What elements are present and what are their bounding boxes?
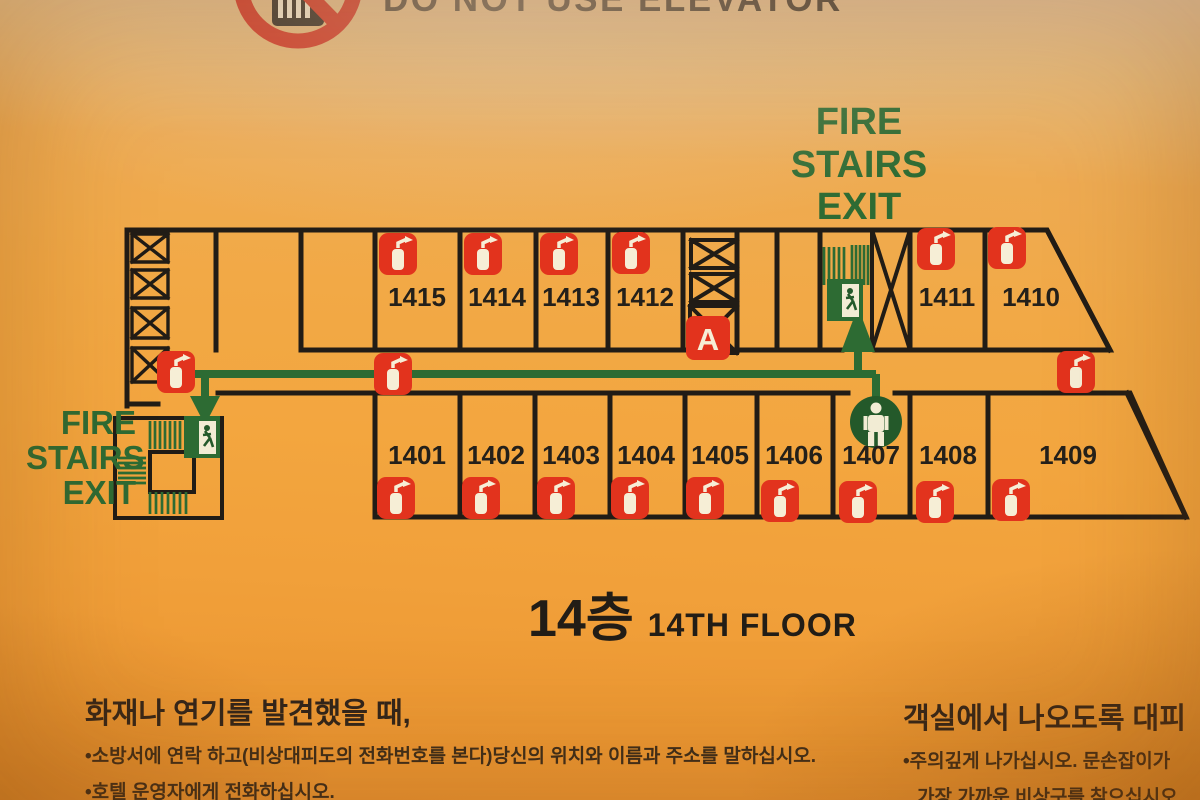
floor-plan: A 1415 1414 1413 1412 1411 1410 1401 140… [0,0,1200,800]
fire-extinguisher-icon [761,480,799,522]
room-1409-label: 1409 [1039,440,1097,470]
stairs-label: STAIRS [778,144,940,187]
room-1415-label: 1415 [388,282,446,312]
zone-a-marker: A [686,316,730,360]
fire-extinguisher-icon [464,233,502,275]
room-1407-label: 1407 [842,440,900,470]
fire-extinguisher-icon [379,233,417,275]
room-1403-label: 1403 [542,440,600,470]
room-1404-label: 1404 [617,440,675,470]
fire-extinguisher-icon [377,477,415,519]
fire-extinguisher-icon [992,479,1030,521]
exit-label: EXIT [26,476,136,511]
fire-extinguisher-icon [917,228,955,270]
instructions-right-heading: 객실에서 나오도록 대피 [903,695,1186,737]
fire-stairs-exit-label-top: FIRE STAIRS EXIT [778,101,940,229]
exit-label: EXIT [778,186,940,229]
room-1402-label: 1402 [467,440,525,470]
fire-extinguisher-icon [540,233,578,275]
stairs-label: STAIRS [26,441,136,476]
fire-extinguisher-icon [374,353,412,395]
fire-extinguisher-icon [916,481,954,523]
room-1410-label: 1410 [1002,282,1060,312]
fire-extinguisher-icon [157,351,195,393]
instruction-bullet: •호텔 운영자에게 전화하십시오. [85,777,816,800]
fire-stairs-exit-label-left: FIRE STAIRS EXIT [26,406,136,511]
room-1411-label: 1411 [919,282,975,312]
fire-label: FIRE [778,101,940,144]
fire-extinguisher-icon [462,477,500,519]
instruction-bullet: •소방서에 연락 하고(비상대피도의 전화번호를 본다)당신의 위치와 이름과 … [85,741,816,768]
do-not-use-elevator-text: DO NOT USE ELEVATOR [383,0,843,20]
room-1408-label: 1408 [919,440,977,470]
room-1401-label: 1401 [388,440,446,470]
zone-a-label: A [697,322,719,357]
exit-running-man-icon [184,416,220,458]
room-1413-label: 1413 [542,282,600,312]
exit-running-man-icon [827,279,863,321]
fire-extinguisher-icon [1057,351,1095,393]
fire-extinguisher-icon [686,477,724,519]
no-elevator-icon [241,0,355,41]
fire-extinguisher-icon [988,227,1026,269]
instructions-evacuate-room: 객실에서 나오도록 대피 •주의깊게 나가십시오. 문손잡이가 가장 가까운 비… [903,695,1186,800]
room-1406-label: 1406 [765,440,823,470]
instruction-bullet-continuation: 가장 가까운 비상구를 찾으십시오 [917,782,1186,800]
fire-extinguisher-icon [839,481,877,523]
instructions-left-heading: 화재나 연기를 발견했을 때, [85,690,816,732]
fire-extinguisher-icon [537,477,575,519]
room-1412-label: 1412 [616,282,674,312]
evacuation-route [176,307,876,425]
floor-title: 14층 14TH FLOOR [528,576,857,651]
floor-title-english: 14TH FLOOR [648,607,857,644]
room-1414-label: 1414 [468,282,526,312]
fire-extinguisher-icon [612,232,650,274]
fire-label: FIRE [26,406,136,441]
room-1405-label: 1405 [691,440,749,470]
instructions-fire-discovered: 화재나 연기를 발견했을 때, •소방서에 연락 하고(비상대피도의 전화번호를… [85,690,816,800]
evacuation-sign-photo: DO NOT USE ELEVATOR FIRE STAIRS EXIT FIR… [0,0,1200,800]
fire-extinguisher-icon [611,477,649,519]
floor-title-korean: 14층 [528,576,634,651]
shaft-cross-brace [872,230,910,350]
instruction-bullet: •주의깊게 나가십시오. 문손잡이가 [903,746,1186,773]
